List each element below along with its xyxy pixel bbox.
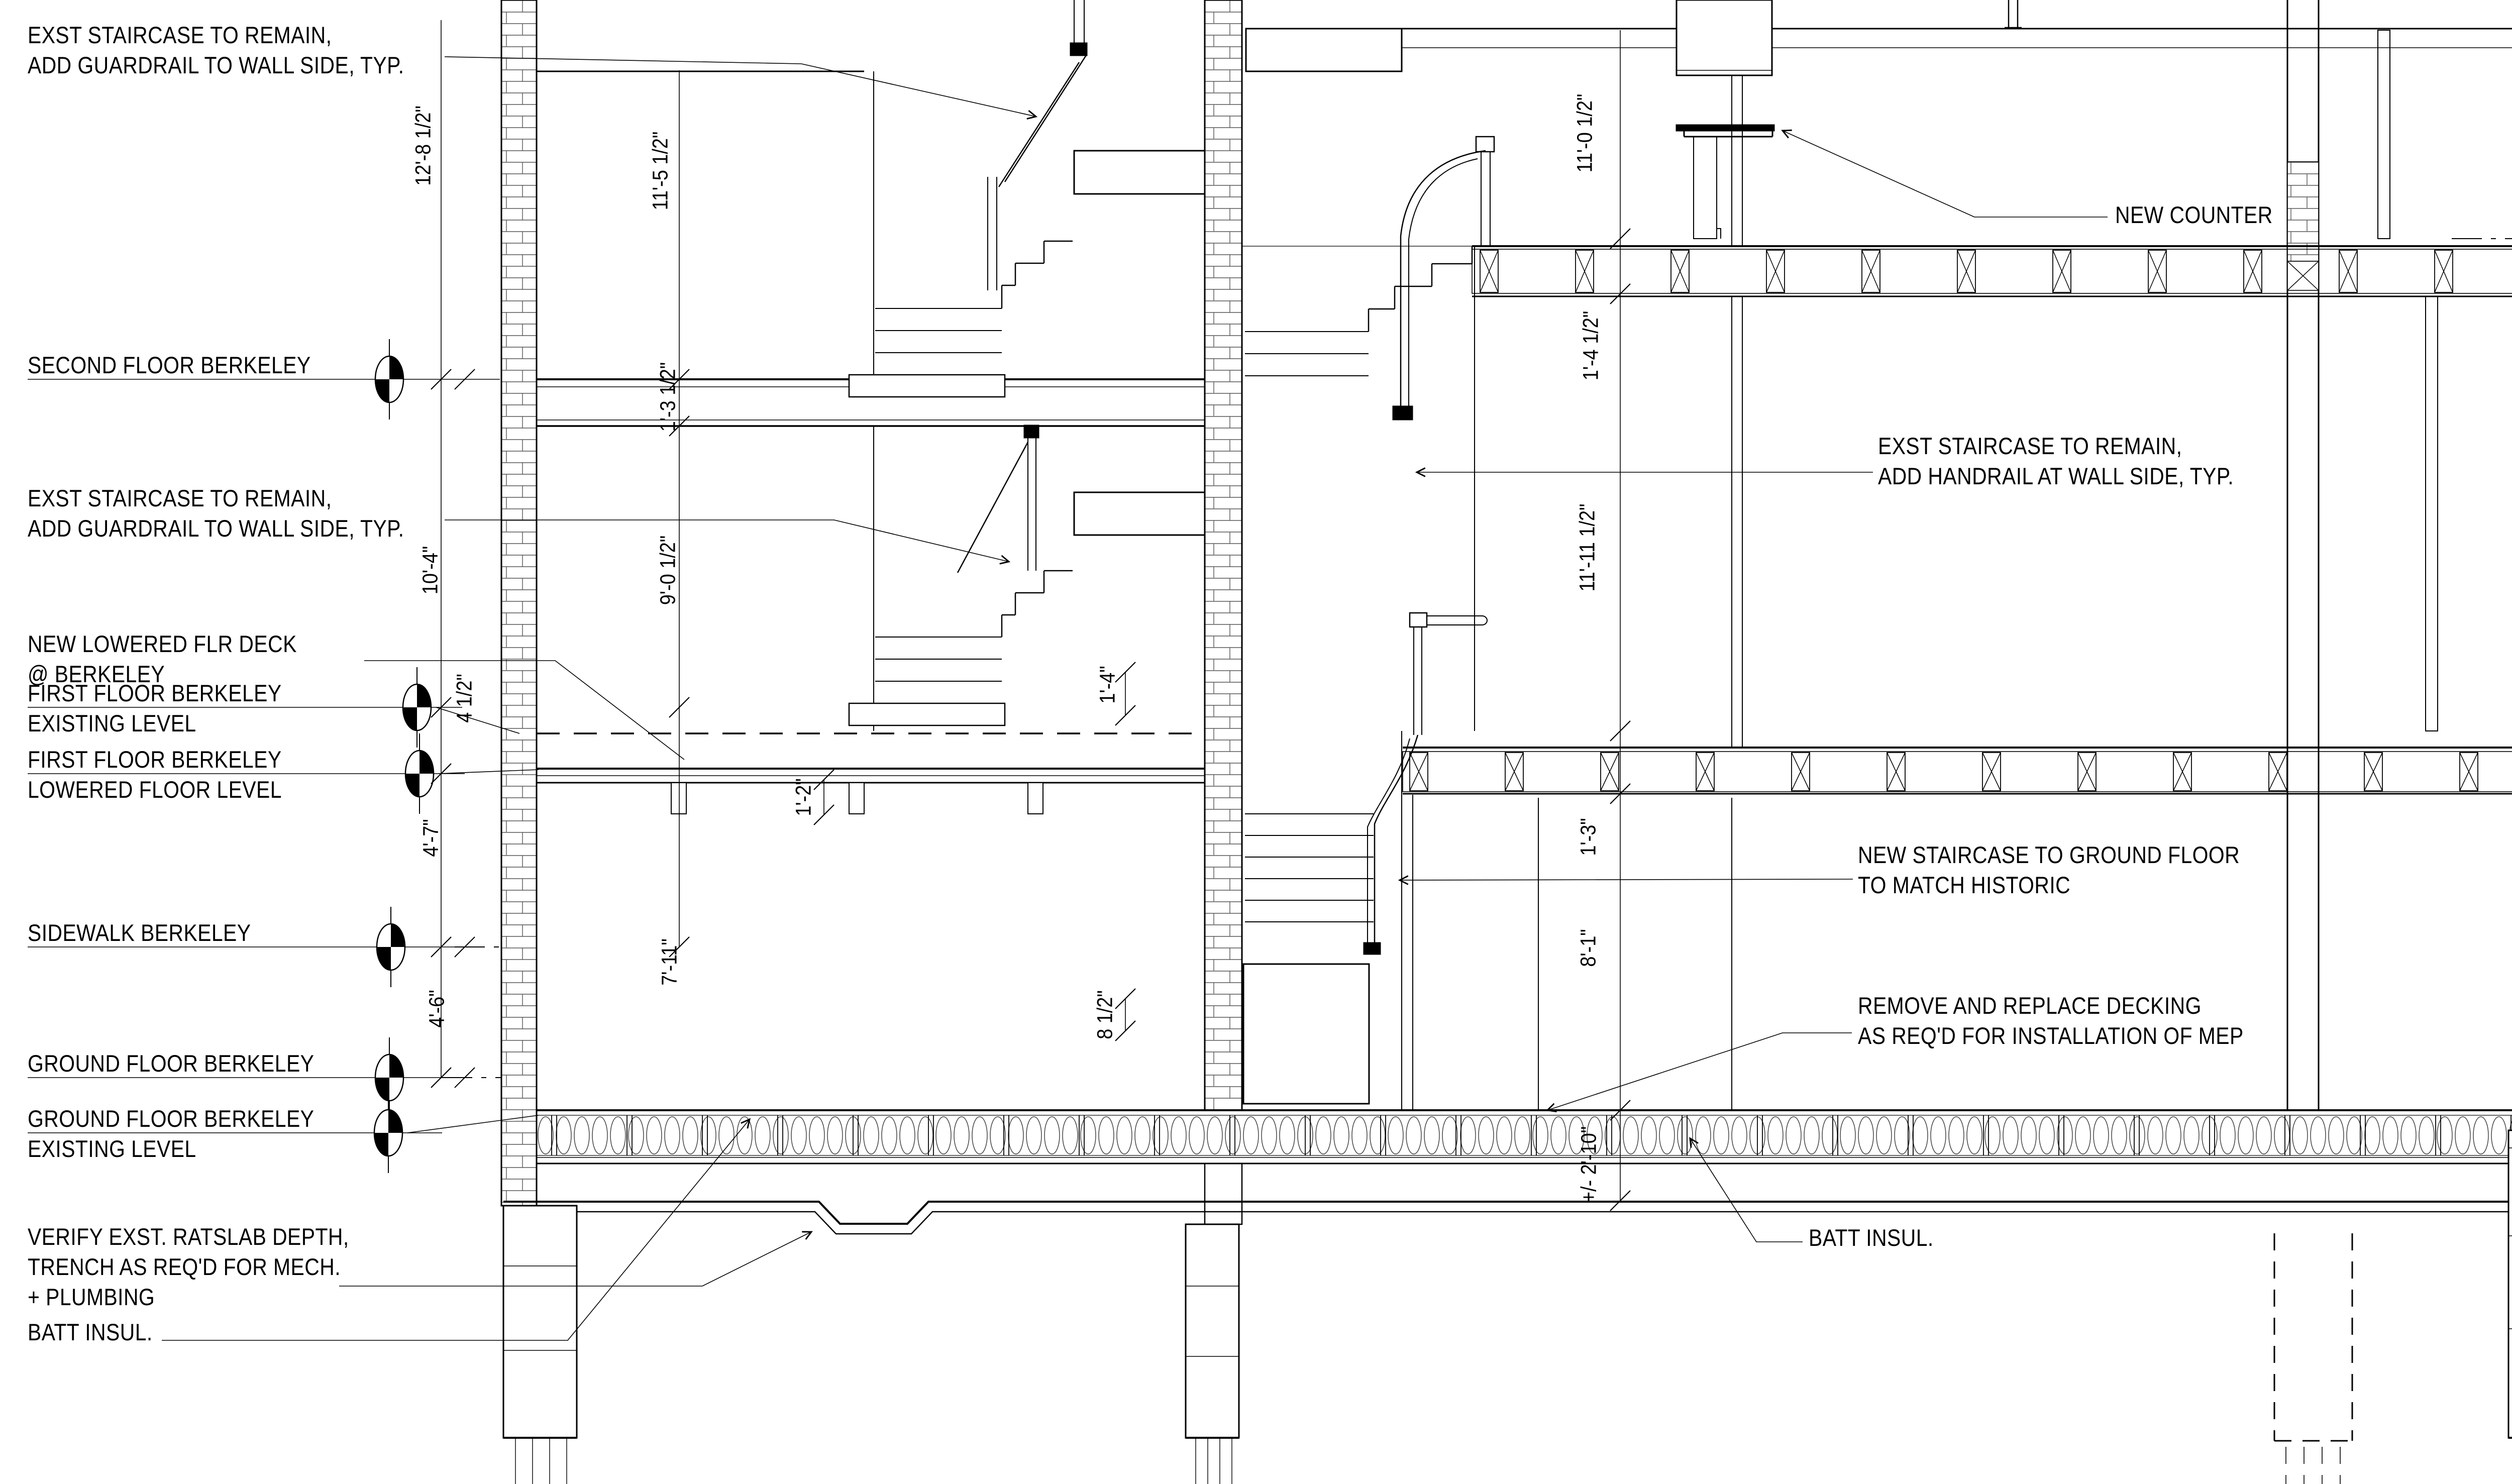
level-first-floor-berkeley-lowered: FIRST FLOOR BERKELEY LOWERED FLOOR LEVEL: [28, 745, 282, 805]
dim-8-1: 8'-1": [1577, 929, 1601, 967]
berkeley-pier: [503, 1206, 577, 1484]
datum-first-floor-berkeley-lowered-icon: [405, 733, 434, 814]
section-drawing-sheet: EXST STAIRCASE TO REMAIN, ADD GUARDRAIL …: [0, 0, 2512, 1484]
callout-new-counter: NEW COUNTER: [2115, 200, 2273, 230]
party-wall: [1205, 0, 1242, 1110]
callout-exst-guardrail-lower: EXST STAIRCASE TO REMAIN, ADD GUARDRAIL …: [28, 483, 404, 544]
party-wall-pier: [1186, 1224, 1239, 1484]
mid-upper-stair: [1245, 137, 1494, 420]
berkeley-upper-stair: [849, 0, 1205, 397]
dim-9-0-half: 9'-0 1/2": [656, 536, 681, 605]
dim-1-4-half: 1'-4 1/2": [1579, 311, 1604, 380]
callout-new-staircase: NEW STAIRCASE TO GROUND FLOOR TO MATCH H…: [1858, 840, 2240, 900]
mid-right-wall: [2287, 0, 2319, 1110]
stairs: [849, 0, 2512, 1267]
datum-second-floor-berkeley-icon: [375, 339, 403, 419]
datum-sidewalk-berkeley-icon: [377, 907, 405, 987]
dim-10-4: 10'-4": [418, 546, 443, 594]
dim-11-0-half: 11'-0 1/2": [1573, 94, 1598, 173]
marlborough-partition-second-floor: [2378, 30, 2390, 239]
level-second-floor-berkeley: SECOND FLOOR BERKELEY: [28, 350, 311, 380]
dim-1-3: 1'-3": [1577, 818, 1601, 856]
dim-1-3-half: 1'-3 1/2": [656, 362, 681, 432]
interior-partitions: [874, 35, 1742, 1110]
dim-1-4: 1'-4": [1096, 666, 1120, 703]
level-datum-icons: [374, 198, 2512, 1241]
callout-remove-decking: REMOVE AND REPLACE DECKING AS REQ'D FOR …: [1858, 991, 2244, 1051]
dim-12-8-half: 12'-8 1/2": [411, 105, 436, 186]
callout-batt-insul-center: BATT INSUL.: [1809, 1223, 1934, 1253]
level-ground-floor-berkeley: GROUND FLOOR BERKELEY: [28, 1048, 314, 1079]
callout-batt-insul-left: BATT INSUL.: [28, 1317, 153, 1347]
dim-4-half: 4 1/2": [453, 674, 477, 723]
dim-ticks: [431, 229, 2512, 1211]
mid-lower-stair: [1243, 613, 1487, 1104]
level-first-floor-berkeley-existing: FIRST FLOOR BERKELEY EXISTING LEVEL: [28, 678, 282, 738]
dim-2-10: +/- 2'-10": [1577, 1126, 1602, 1203]
hidden-pier: [2274, 1233, 2352, 1484]
berkeley-exterior-wall: [501, 0, 537, 1206]
dim-8-half: 8 1/2": [1093, 990, 1118, 1039]
dim-1-2: 1'-2": [792, 778, 816, 816]
callout-exst-handrail: EXST STAIRCASE TO REMAIN, ADD HANDRAIL A…: [1878, 431, 2234, 491]
datum-ground-floor-berkeley-existing-icon: [374, 1093, 402, 1173]
level-sidewalk-berkeley: SIDEWALK BERKELEY: [28, 918, 251, 948]
datum-first-floor-berkeley-existing-icon: [403, 667, 431, 748]
dim-11-11-half: 11'-11 1/2": [1576, 504, 1600, 592]
level-ground-floor-berkeley-existing: GROUND FLOOR BERKELEY EXISTING LEVEL: [28, 1104, 314, 1164]
kitchen-counter: [1676, 0, 1774, 239]
dim-7-11: 7'-11": [658, 938, 682, 986]
marlborough-partition-first-floor: [2426, 296, 2438, 731]
berkeley-lower-stair: [849, 425, 1205, 725]
datum-ground-floor-berkeley-icon: [375, 1037, 403, 1118]
dim-11-5-half: 11'-5 1/2": [649, 132, 673, 210]
callout-exst-guardrail-upper: EXST STAIRCASE TO REMAIN, ADD GUARDRAIL …: [28, 20, 404, 80]
marlborough-pier: [2508, 1130, 2512, 1484]
dim-4-7: 4'-7": [419, 819, 444, 857]
dim-4-6: 4'-6": [425, 990, 450, 1027]
callout-verify-ratslab: VERIFY EXST. RATSLAB DEPTH, TRENCH AS RE…: [28, 1222, 349, 1312]
